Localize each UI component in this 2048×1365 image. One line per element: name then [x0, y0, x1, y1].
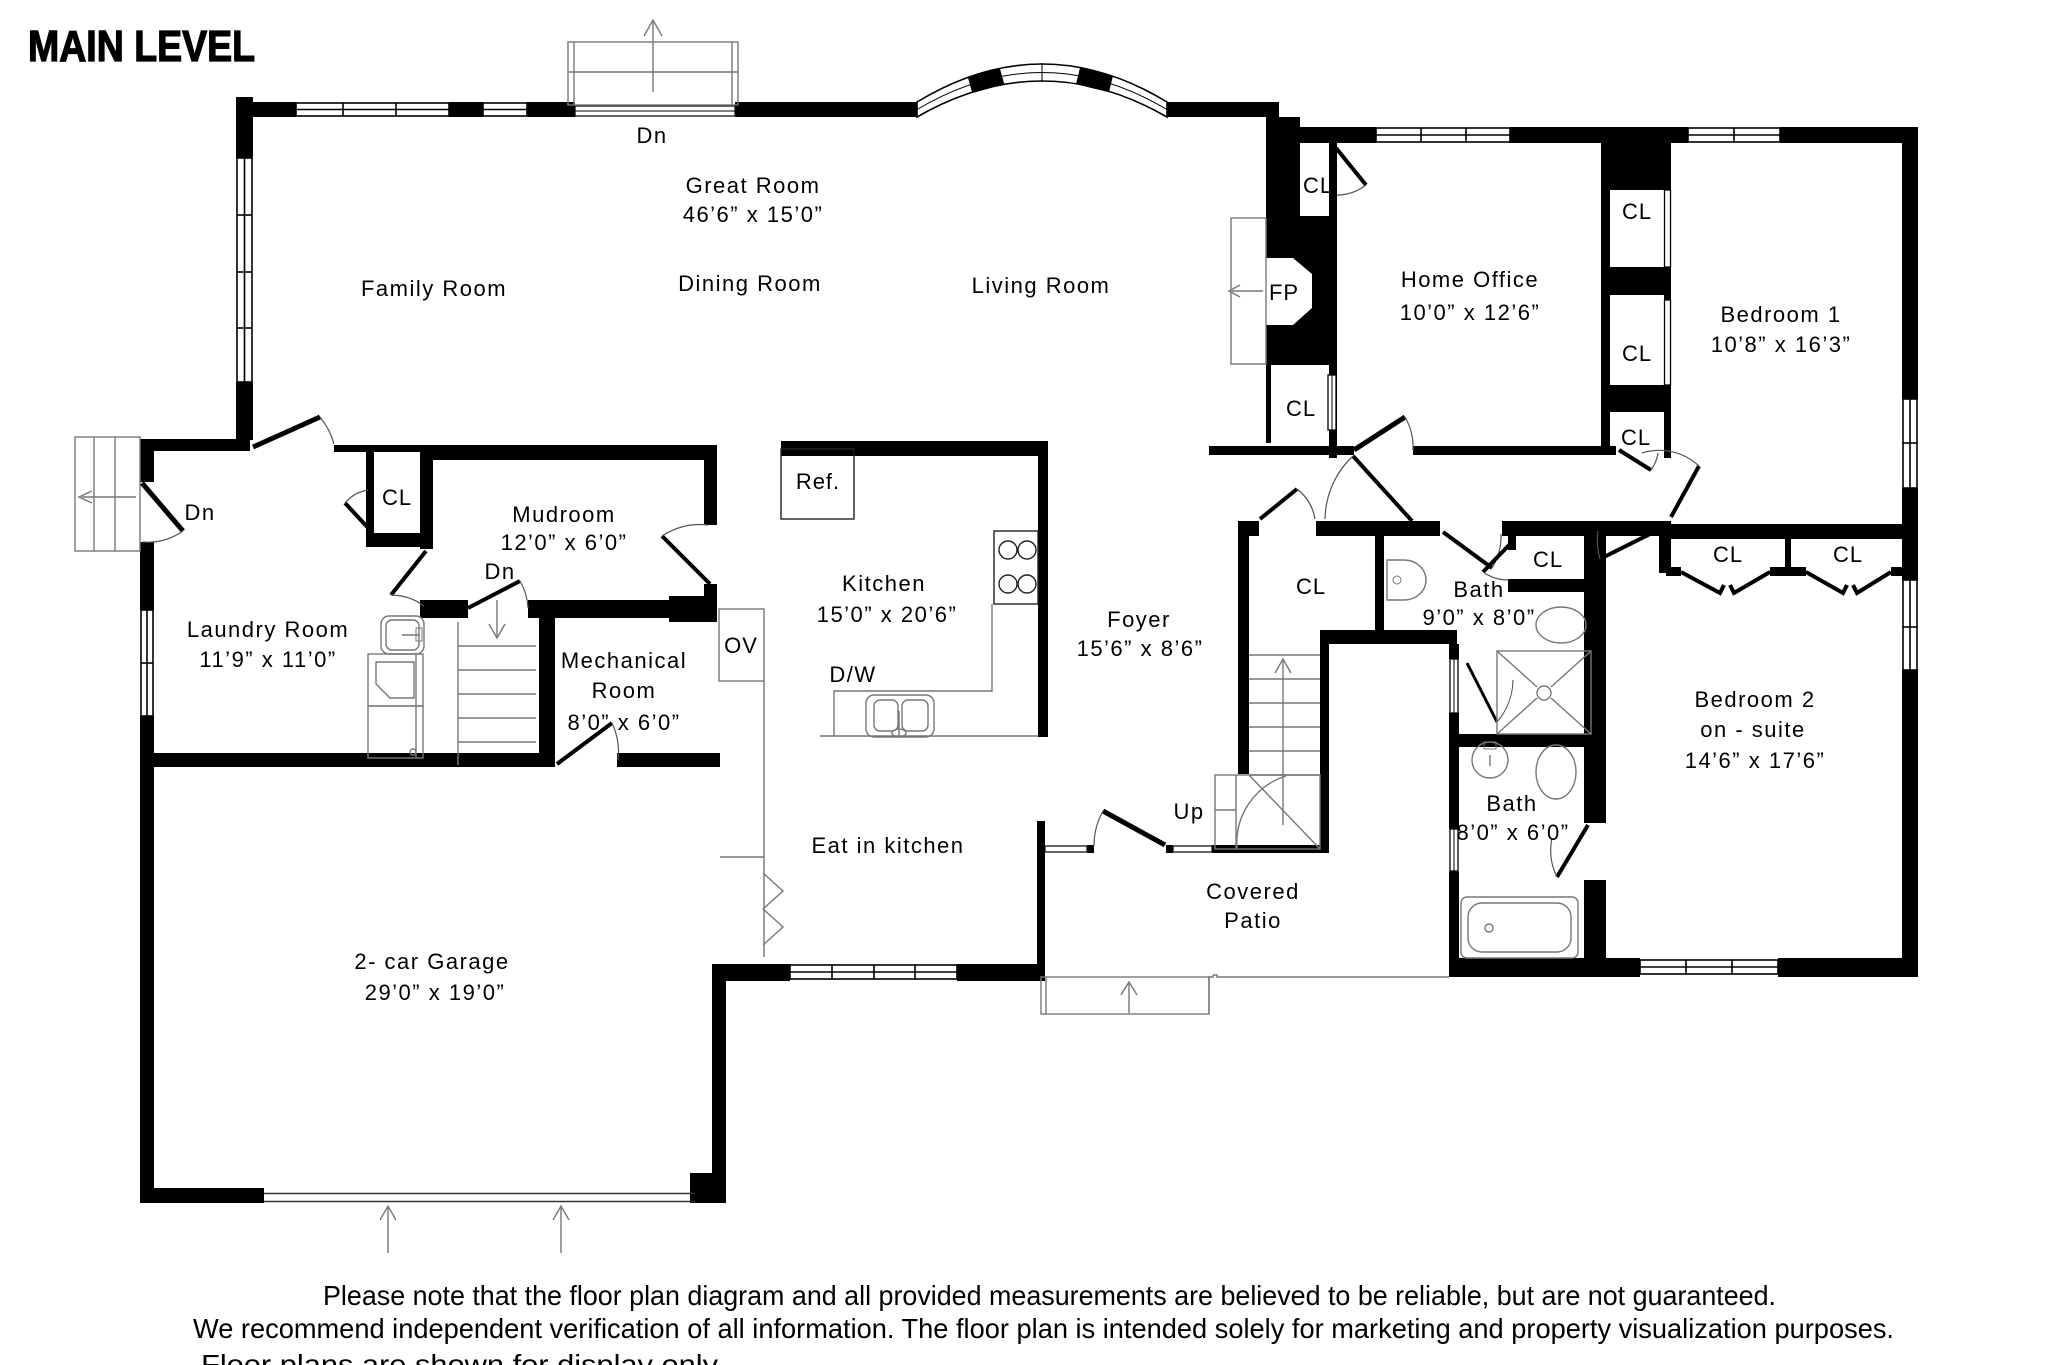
svg-text:CL: CL — [1533, 547, 1563, 572]
svg-text:Bedroom 2: Bedroom 2 — [1694, 687, 1815, 712]
svg-text:Covered: Covered — [1206, 879, 1300, 904]
svg-text:Foyer: Foyer — [1107, 607, 1171, 632]
svg-text:Dn: Dn — [184, 500, 215, 525]
svg-text:Laundry Room: Laundry Room — [187, 617, 349, 642]
svg-text:Patio: Patio — [1224, 908, 1282, 933]
svg-text:CL: CL — [1833, 542, 1863, 567]
svg-text:We recommend independent verif: We recommend independent verification of… — [193, 1313, 1894, 1344]
svg-text:9’0” x 8’0”: 9’0” x 8’0” — [1422, 605, 1535, 630]
svg-text:Ref.: Ref. — [796, 469, 840, 494]
svg-text:OV: OV — [724, 633, 758, 658]
svg-text:Mechanical: Mechanical — [561, 648, 687, 673]
svg-text:FP: FP — [1269, 280, 1299, 305]
svg-text:8’0” x 6’0”: 8’0” x 6’0” — [1456, 820, 1569, 845]
svg-text:CL: CL — [1296, 574, 1326, 599]
svg-text:Family Room: Family Room — [361, 276, 507, 301]
svg-text:Floor plans are shown for disp: Floor plans are shown for display only — [201, 1349, 718, 1365]
svg-text:Eat in kitchen: Eat in kitchen — [811, 833, 964, 858]
svg-text:Dn: Dn — [636, 123, 667, 148]
svg-text:MAIN LEVEL: MAIN LEVEL — [28, 22, 255, 71]
svg-text:Dn: Dn — [484, 559, 515, 584]
svg-text:CL: CL — [1622, 199, 1652, 224]
svg-text:D/W: D/W — [829, 662, 876, 687]
svg-text:Bedroom 1: Bedroom 1 — [1720, 302, 1841, 327]
svg-text:15’0” x 20’6”: 15’0” x 20’6” — [817, 602, 958, 627]
svg-text:CL: CL — [1286, 396, 1316, 421]
svg-text:29’0” x 19’0”: 29’0” x 19’0” — [365, 980, 506, 1005]
svg-text:CL: CL — [1303, 173, 1333, 198]
svg-text:12’0” x 6’0”: 12’0” x 6’0” — [501, 530, 628, 555]
svg-text:Bath: Bath — [1486, 791, 1537, 816]
svg-text:14’6” x 17’6”: 14’6” x 17’6” — [1685, 748, 1826, 773]
svg-text:on - suite: on - suite — [1700, 717, 1806, 742]
svg-text:Living Room: Living Room — [972, 273, 1111, 298]
svg-text:Up: Up — [1173, 799, 1204, 824]
svg-text:10’0” x 12’6”: 10’0” x 12’6” — [1400, 300, 1541, 325]
svg-text:Dining Room: Dining Room — [678, 271, 822, 296]
svg-text:CL: CL — [382, 485, 412, 510]
svg-text:2- car Garage: 2- car Garage — [354, 949, 509, 974]
svg-text:Mudroom: Mudroom — [512, 502, 615, 527]
svg-text:Please note that the floor pla: Please note that the floor plan diagram … — [323, 1280, 1776, 1311]
svg-text:Kitchen: Kitchen — [842, 571, 926, 596]
svg-text:CL: CL — [1621, 425, 1651, 450]
svg-text:10’8” x 16’3”: 10’8” x 16’3” — [1711, 332, 1852, 357]
svg-text:8’0” x 6’0”: 8’0” x 6’0” — [567, 710, 680, 735]
svg-text:CL: CL — [1713, 542, 1743, 567]
svg-text:Home Office: Home Office — [1401, 267, 1539, 292]
svg-text:46’6” x 15’0”: 46’6” x 15’0” — [683, 202, 824, 227]
svg-text:11’9” x 11’0”: 11’9” x 11’0” — [199, 647, 336, 672]
svg-text:Bath: Bath — [1453, 577, 1504, 602]
svg-text:Room: Room — [592, 678, 657, 703]
svg-text:CL: CL — [1622, 341, 1652, 366]
svg-text:Great Room: Great Room — [686, 173, 821, 198]
svg-text:15’6” x 8’6”: 15’6” x 8’6” — [1077, 636, 1204, 661]
